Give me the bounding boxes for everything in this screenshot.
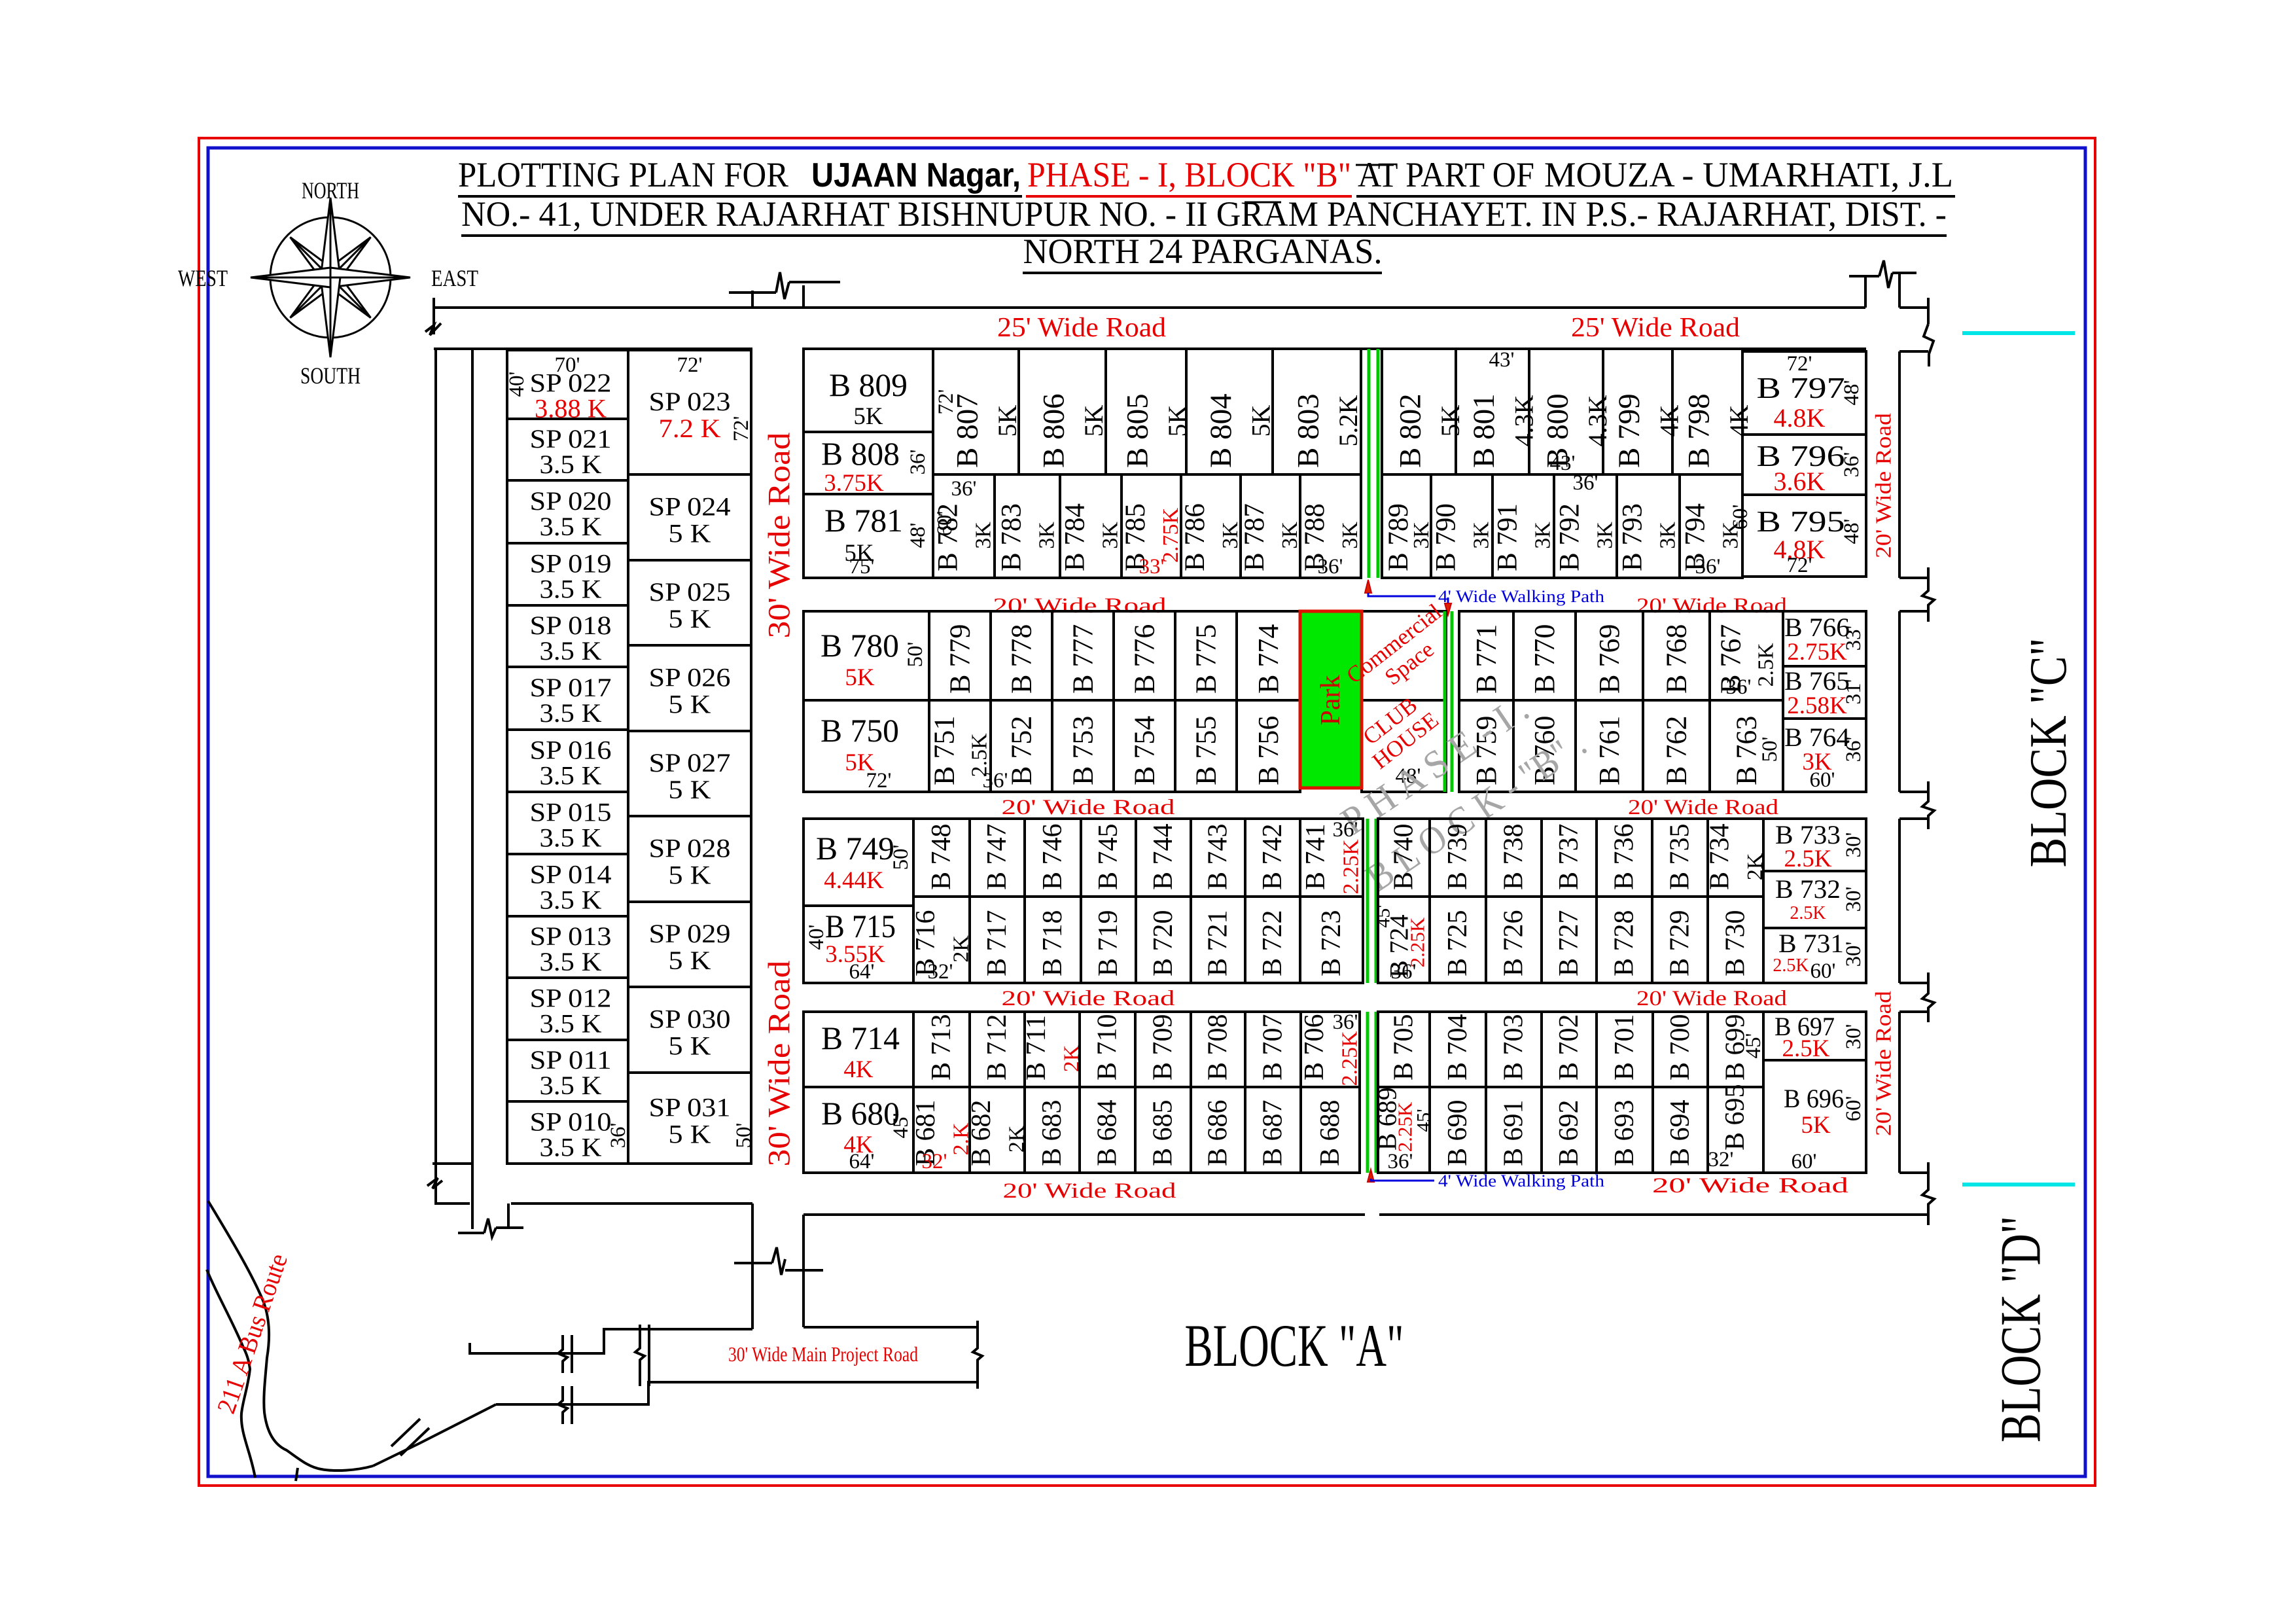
svg-text:B 683: B 683 <box>1037 1099 1067 1166</box>
svg-text:5K: 5K <box>845 664 875 691</box>
svg-text:B 722: B 722 <box>1258 910 1288 976</box>
svg-text:50': 50' <box>889 845 913 870</box>
svg-text:B 707: B 707 <box>1258 1014 1288 1080</box>
svg-text:36': 36' <box>951 477 977 501</box>
svg-text:72': 72' <box>730 416 753 442</box>
svg-text:B 776: B 776 <box>1129 624 1161 694</box>
svg-text:B 778: B 778 <box>1006 624 1038 694</box>
svg-text:5K: 5K <box>1246 404 1276 437</box>
svg-text:EAST: EAST <box>431 265 478 291</box>
svg-text:MOUZA - UMARHATI, J.L: MOUZA - UMARHATI, J.L <box>1544 155 1953 194</box>
svg-text:B 742: B 742 <box>1258 823 1288 890</box>
svg-text:B 726: B 726 <box>1499 910 1529 976</box>
svg-text:B 771: B 771 <box>1470 624 1502 694</box>
svg-text:B 792: B 792 <box>1555 503 1585 571</box>
svg-text:4.44K: 4.44K <box>824 867 884 894</box>
svg-text:UJAAN Nagar,: UJAAN Nagar, <box>811 156 1021 194</box>
svg-text:3.5 K: 3.5 K <box>540 636 602 666</box>
svg-text:PLOTTING PLAN FOR: PLOTTING PLAN FOR <box>458 155 788 194</box>
svg-text:B 764: B 764 <box>1784 722 1850 752</box>
svg-text:B 737: B 737 <box>1554 823 1584 890</box>
svg-text:AT PART OF: AT PART OF <box>1358 155 1534 194</box>
svg-text:B 723: B 723 <box>1316 910 1347 976</box>
svg-text:4K: 4K <box>1655 404 1684 437</box>
svg-text:B 803: B 803 <box>1292 393 1326 468</box>
svg-text:3.5 K: 3.5 K <box>540 947 602 976</box>
svg-text:20' Wide Road: 20' Wide Road <box>1003 1179 1177 1203</box>
svg-text:NORTH 24 PARGANAS.: NORTH 24 PARGANAS. <box>1023 232 1383 271</box>
svg-text:B 808: B 808 <box>821 435 900 472</box>
svg-text:B 701: B 701 <box>1610 1014 1640 1080</box>
svg-text:3K: 3K <box>972 522 996 549</box>
svg-text:B 700: B 700 <box>1665 1014 1695 1080</box>
svg-text:36': 36' <box>1726 675 1752 699</box>
svg-text:48': 48' <box>1840 519 1863 544</box>
svg-text:30': 30' <box>1842 887 1865 912</box>
svg-text:32': 32' <box>928 960 953 984</box>
svg-text:32': 32' <box>1708 1148 1734 1171</box>
svg-text:B 686: B 686 <box>1203 1099 1233 1166</box>
svg-text:5K: 5K <box>1079 404 1108 437</box>
svg-text:5 K: 5 K <box>669 1031 711 1061</box>
svg-text:20' Wide Road: 20' Wide Road <box>1002 796 1176 819</box>
svg-text:B 741: B 741 <box>1301 823 1331 890</box>
svg-text:B 774: B 774 <box>1252 624 1284 694</box>
svg-text:20' Wide Road: 20' Wide Road <box>1636 987 1788 1010</box>
svg-text:B 798: B 798 <box>1682 393 1716 468</box>
svg-text:2.25K: 2.25K <box>1338 1031 1362 1086</box>
svg-text:B 694: B 694 <box>1665 1099 1695 1166</box>
svg-text:60': 60' <box>1810 768 1835 792</box>
svg-text:45': 45' <box>889 1113 913 1139</box>
svg-text:B 775: B 775 <box>1190 624 1222 694</box>
svg-text:SP 026: SP 026 <box>649 663 731 692</box>
svg-text:72': 72' <box>1787 554 1812 577</box>
svg-text:20' Wide Road: 20' Wide Road <box>1652 1174 1849 1198</box>
svg-text:SP 029: SP 029 <box>649 919 731 948</box>
svg-text:B 709: B 709 <box>1148 1014 1178 1080</box>
svg-text:5 K: 5 K <box>669 519 711 548</box>
svg-text:20' Wide Road: 20' Wide Road <box>993 594 1167 618</box>
svg-text:B 793: B 793 <box>1617 503 1648 571</box>
svg-text:3.5 K: 3.5 K <box>540 575 602 604</box>
svg-text:50': 50' <box>1758 737 1782 762</box>
svg-text:30': 30' <box>1842 832 1865 858</box>
svg-text:36': 36' <box>1333 1010 1358 1034</box>
svg-text:B 720: B 720 <box>1148 910 1178 976</box>
svg-text:B 779: B 779 <box>944 624 976 694</box>
svg-text:B 749: B 749 <box>816 830 894 866</box>
svg-text:5 K: 5 K <box>669 775 711 804</box>
svg-text:2.58K: 2.58K <box>1787 692 1847 719</box>
svg-text:B 725: B 725 <box>1443 910 1473 976</box>
svg-text:B 806: B 806 <box>1037 393 1071 468</box>
svg-text:B 693: B 693 <box>1610 1099 1640 1166</box>
svg-text:48': 48' <box>906 523 930 548</box>
svg-text:30' Wide Road: 30' Wide Road <box>762 961 797 1167</box>
svg-text:48': 48' <box>1840 380 1863 406</box>
svg-text:4K: 4K <box>843 1056 874 1083</box>
svg-text:B 704: B 704 <box>1443 1014 1473 1080</box>
svg-text:B 765: B 765 <box>1784 666 1850 696</box>
svg-text:20' Wide Road: 20' Wide Road <box>1002 987 1176 1010</box>
svg-text:B 703: B 703 <box>1499 1014 1529 1080</box>
svg-text:33': 33' <box>1139 555 1165 579</box>
svg-text:25' Wide Road: 25' Wide Road <box>1571 313 1740 343</box>
svg-text:30': 30' <box>1842 1024 1865 1050</box>
svg-text:SP 024: SP 024 <box>649 492 731 522</box>
svg-text:45': 45' <box>1742 1033 1765 1059</box>
svg-text:64': 64' <box>849 1150 875 1173</box>
svg-text:B 748: B 748 <box>927 823 957 890</box>
svg-text:4K: 4K <box>1724 404 1754 437</box>
svg-text:B 685: B 685 <box>1148 1099 1178 1166</box>
svg-text:B 784: B 784 <box>1060 503 1091 571</box>
svg-text:SP 027: SP 027 <box>649 748 731 777</box>
svg-text:5 K: 5 K <box>669 604 711 633</box>
svg-text:2.5K: 2.5K <box>1784 846 1832 872</box>
svg-text:B 787: B 787 <box>1239 503 1270 571</box>
svg-text:B 754: B 754 <box>1129 716 1161 785</box>
svg-text:B 705: B 705 <box>1389 1014 1419 1080</box>
svg-text:B 786: B 786 <box>1180 503 1210 571</box>
svg-text:B 730: B 730 <box>1721 910 1751 976</box>
svg-text:B 801: B 801 <box>1467 393 1501 468</box>
svg-text:5 K: 5 K <box>669 946 711 975</box>
svg-text:3K: 3K <box>1531 522 1555 549</box>
svg-text:5K: 5K <box>1436 404 1465 437</box>
svg-text:B 702: B 702 <box>1554 1014 1584 1080</box>
svg-text:SOUTH: SOUTH <box>300 363 361 389</box>
svg-text:2.5K: 2.5K <box>1754 643 1778 687</box>
svg-text:36': 36' <box>1842 737 1865 762</box>
svg-text:B 797: B 797 <box>1757 371 1845 404</box>
svg-text:B 727: B 727 <box>1554 910 1584 976</box>
svg-text:B 682: B 682 <box>966 1099 997 1166</box>
svg-text:72': 72' <box>1787 352 1812 376</box>
svg-text:B 743: B 743 <box>1203 823 1233 890</box>
svg-text:5.2K: 5.2K <box>1333 395 1363 446</box>
svg-text:B 735: B 735 <box>1665 823 1695 890</box>
svg-text:NORTH: NORTH <box>302 177 359 204</box>
svg-text:3K: 3K <box>1338 522 1362 549</box>
svg-text:B 739: B 739 <box>1443 823 1473 890</box>
svg-text:B 690: B 690 <box>1443 1099 1473 1166</box>
svg-text:33': 33' <box>1842 626 1865 651</box>
svg-text:2.75K: 2.75K <box>1787 639 1847 666</box>
svg-text:SP 025: SP 025 <box>649 577 731 607</box>
svg-text:B 804: B 804 <box>1204 393 1238 468</box>
svg-text:3.75K: 3.75K <box>824 470 884 497</box>
svg-text:B 781: B 781 <box>824 502 903 539</box>
svg-text:B 766: B 766 <box>1784 613 1850 642</box>
svg-text:45': 45' <box>1413 1109 1435 1132</box>
svg-text:4.8K: 4.8K <box>1774 403 1826 433</box>
svg-text:B 688: B 688 <box>1315 1099 1345 1166</box>
svg-text:BLOCK "A": BLOCK "A" <box>1185 1312 1404 1379</box>
svg-text:SP 023: SP 023 <box>649 387 731 416</box>
svg-text:32': 32' <box>922 1150 947 1173</box>
svg-text:B 753: B 753 <box>1067 716 1099 785</box>
svg-text:B 790: B 790 <box>1431 503 1462 571</box>
svg-text:72': 72' <box>934 389 958 415</box>
svg-text:B 746: B 746 <box>1038 823 1068 890</box>
svg-text:BLOCK "D": BLOCK "D" <box>1990 1216 2053 1442</box>
svg-text:5 K: 5 K <box>669 690 711 719</box>
svg-text:20' Wide Road: 20' Wide Road <box>1628 796 1779 819</box>
svg-text:20' Wide Road: 20' Wide Road <box>1636 594 1788 618</box>
svg-text:5 K: 5 K <box>669 1120 711 1149</box>
svg-text:B 750: B 750 <box>821 712 899 749</box>
svg-text:60': 60' <box>1792 1150 1817 1173</box>
svg-text:43': 43' <box>1550 452 1576 475</box>
svg-text:3.5 K: 3.5 K <box>540 1009 602 1039</box>
svg-text:B 780: B 780 <box>821 627 899 664</box>
svg-text:B 747: B 747 <box>982 823 1012 890</box>
svg-text:PHASE - I, BLOCK "B": PHASE - I, BLOCK "B" <box>1027 155 1351 194</box>
svg-text:B 680: B 680 <box>821 1095 900 1132</box>
svg-text:B 744: B 744 <box>1148 823 1178 890</box>
svg-text:36': 36' <box>1333 818 1358 842</box>
svg-text:50': 50' <box>904 642 927 668</box>
svg-text:36': 36' <box>607 1123 630 1149</box>
svg-text:SP 030: SP 030 <box>649 1005 731 1034</box>
svg-text:3K: 3K <box>1278 522 1302 549</box>
svg-text:B 721: B 721 <box>1203 910 1233 976</box>
svg-text:B 695: B 695 <box>1720 1084 1750 1150</box>
svg-text:3.5 K: 3.5 K <box>540 450 602 479</box>
svg-text:5K: 5K <box>1163 404 1192 437</box>
svg-text:B 696: B 696 <box>1784 1084 1844 1113</box>
svg-text:50': 50' <box>732 1123 756 1149</box>
svg-text:4.3K: 4.3K <box>1510 395 1539 446</box>
svg-text:3.5 K: 3.5 K <box>540 1133 602 1162</box>
svg-text:3.5 K: 3.5 K <box>540 761 602 791</box>
svg-text:2.5K: 2.5K <box>1773 955 1809 976</box>
svg-text:3.5 K: 3.5 K <box>540 885 602 915</box>
svg-text:70': 70' <box>555 353 580 377</box>
svg-text:B 728: B 728 <box>1610 910 1640 976</box>
svg-text:B 783: B 783 <box>997 503 1027 571</box>
svg-text:B 691: B 691 <box>1499 1099 1529 1166</box>
svg-text:3.6K: 3.6K <box>1774 467 1826 496</box>
svg-text:40': 40' <box>505 372 529 397</box>
svg-text:4' Wide Walking Path: 4' Wide Walking Path <box>1438 1171 1604 1190</box>
svg-text:B 713: B 713 <box>927 1014 957 1080</box>
svg-text:36': 36' <box>906 450 930 475</box>
svg-text:B 712: B 712 <box>982 1014 1012 1080</box>
svg-text:25' Wide Road: 25' Wide Road <box>997 313 1166 343</box>
svg-text:B 802: B 802 <box>1394 393 1428 468</box>
svg-text:B 795: B 795 <box>1757 505 1845 538</box>
svg-text:4' Wide Walking Path: 4' Wide Walking Path <box>1438 587 1604 606</box>
svg-text:2.5K: 2.5K <box>1790 903 1826 923</box>
svg-text:3.5 K: 3.5 K <box>540 512 602 541</box>
svg-text:3.5 K: 3.5 K <box>540 823 602 853</box>
svg-text:B 687: B 687 <box>1258 1099 1288 1166</box>
svg-text:B 751: B 751 <box>928 716 961 785</box>
svg-text:B 745: B 745 <box>1093 823 1123 890</box>
svg-text:30' Wide Main Project Road: 30' Wide Main Project Road <box>728 1342 918 1366</box>
svg-text:4.3K: 4.3K <box>1583 395 1612 446</box>
svg-text:2.25K: 2.25K <box>1339 839 1364 895</box>
svg-text:B 738: B 738 <box>1499 823 1529 890</box>
svg-text:NO.- 41, UNDER RAJARHAT BISHNU: NO.- 41, UNDER RAJARHAT BISHNUPUR NO. - … <box>461 194 1947 234</box>
svg-text:B 706: B 706 <box>1299 1014 1330 1080</box>
svg-text:60': 60' <box>1810 959 1836 983</box>
svg-text:SP 031: SP 031 <box>649 1093 731 1122</box>
svg-text:B 732: B 732 <box>1775 874 1841 904</box>
svg-text:30' Wide Road: 30' Wide Road <box>762 433 797 639</box>
svg-text:B 809: B 809 <box>829 366 908 403</box>
svg-text:B 736: B 736 <box>1610 823 1640 890</box>
svg-text:30': 30' <box>1842 942 1865 967</box>
svg-text:B 755: B 755 <box>1190 716 1222 785</box>
svg-text:B 762: B 762 <box>1661 716 1693 785</box>
svg-text:SP 028: SP 028 <box>649 834 731 863</box>
svg-text:3.5 K: 3.5 K <box>540 698 602 728</box>
svg-text:20' Wide Road: 20' Wide Road <box>1872 991 1896 1136</box>
svg-text:36': 36' <box>1388 1150 1413 1173</box>
svg-text:B 768: B 768 <box>1661 624 1693 694</box>
svg-text:Park: Park <box>1316 675 1346 726</box>
svg-text:7.2 K: 7.2 K <box>659 414 721 443</box>
svg-text:B 756: B 756 <box>1252 716 1284 785</box>
svg-text:3K: 3K <box>1656 522 1680 549</box>
svg-text:36': 36' <box>983 769 1008 793</box>
svg-text:B 740: B 740 <box>1389 823 1419 890</box>
svg-text:B 711: B 711 <box>1021 1015 1051 1080</box>
svg-text:43': 43' <box>1489 348 1515 372</box>
svg-text:31': 31' <box>1842 679 1865 705</box>
svg-text:64': 64' <box>849 960 875 984</box>
svg-text:5K: 5K <box>1801 1112 1831 1139</box>
svg-text:B 692: B 692 <box>1554 1099 1584 1166</box>
svg-text:B 714: B 714 <box>821 1020 900 1056</box>
svg-text:B 708: B 708 <box>1203 1014 1233 1080</box>
svg-text:3K: 3K <box>1099 522 1123 549</box>
svg-text:36': 36' <box>1318 555 1343 579</box>
svg-text:3K: 3K <box>1593 522 1617 549</box>
svg-text:B 734: B 734 <box>1705 823 1735 890</box>
svg-text:B 717: B 717 <box>982 910 1012 976</box>
svg-text:B 752: B 752 <box>1006 716 1038 785</box>
svg-text:60': 60' <box>1842 1096 1865 1122</box>
svg-text:36': 36' <box>1695 555 1721 579</box>
svg-text:B 761: B 761 <box>1593 716 1625 785</box>
svg-text:B 791: B 791 <box>1492 503 1523 571</box>
svg-text:B 770: B 770 <box>1528 624 1561 694</box>
svg-text:2.5K: 2.5K <box>1782 1035 1830 1062</box>
svg-text:36': 36' <box>1573 471 1598 495</box>
svg-text:B 729: B 729 <box>1665 910 1695 976</box>
svg-text:5K: 5K <box>853 403 883 430</box>
svg-text:36': 36' <box>1391 960 1417 984</box>
svg-text:72': 72' <box>677 353 703 377</box>
svg-text:WEST: WEST <box>178 265 228 291</box>
svg-text:B 731: B 731 <box>1778 929 1844 958</box>
svg-text:72': 72' <box>866 769 892 793</box>
svg-text:BLOCK "C": BLOCK "C" <box>2020 638 2077 868</box>
svg-text:60': 60' <box>933 511 957 537</box>
svg-text:36': 36' <box>1840 452 1863 478</box>
svg-text:B 805: B 805 <box>1121 393 1155 468</box>
svg-text:60': 60' <box>1729 505 1752 530</box>
svg-text:3K: 3K <box>1035 522 1059 549</box>
svg-text:B 715: B 715 <box>825 908 896 944</box>
svg-text:B 777: B 777 <box>1067 624 1099 694</box>
svg-text:B 719: B 719 <box>1093 910 1123 976</box>
svg-text:75': 75' <box>849 555 875 579</box>
svg-text:B 769: B 769 <box>1593 624 1625 694</box>
svg-text:B 710: B 710 <box>1093 1014 1123 1080</box>
svg-text:40': 40' <box>805 925 828 950</box>
svg-text:20' Wide Road: 20' Wide Road <box>1872 413 1896 558</box>
svg-text:3.5 K: 3.5 K <box>540 1071 602 1100</box>
svg-text:B 684: B 684 <box>1093 1099 1123 1166</box>
svg-text:3K: 3K <box>1470 522 1494 549</box>
svg-text:B 799: B 799 <box>1612 393 1646 468</box>
svg-text:5 K: 5 K <box>669 861 711 890</box>
svg-text:B 718: B 718 <box>1038 910 1068 976</box>
